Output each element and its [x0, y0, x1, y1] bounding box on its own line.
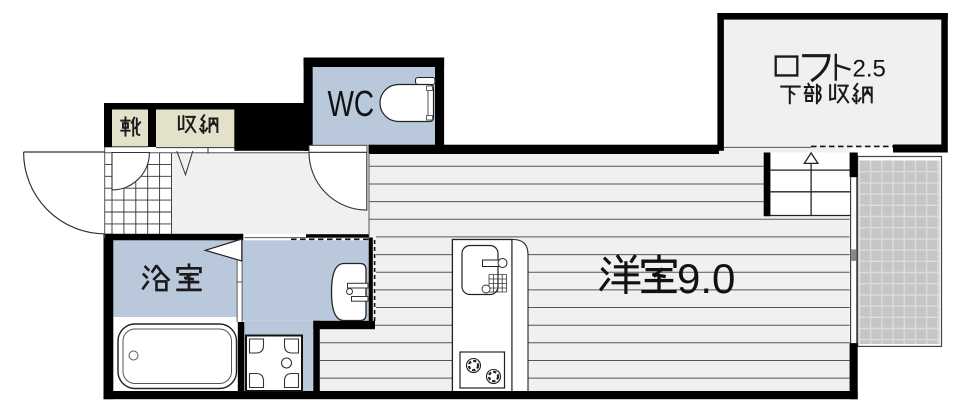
svg-text:WC: WC: [328, 83, 375, 123]
svg-text:9.0: 9.0: [677, 255, 735, 302]
svg-text:2.5: 2.5: [853, 56, 886, 83]
